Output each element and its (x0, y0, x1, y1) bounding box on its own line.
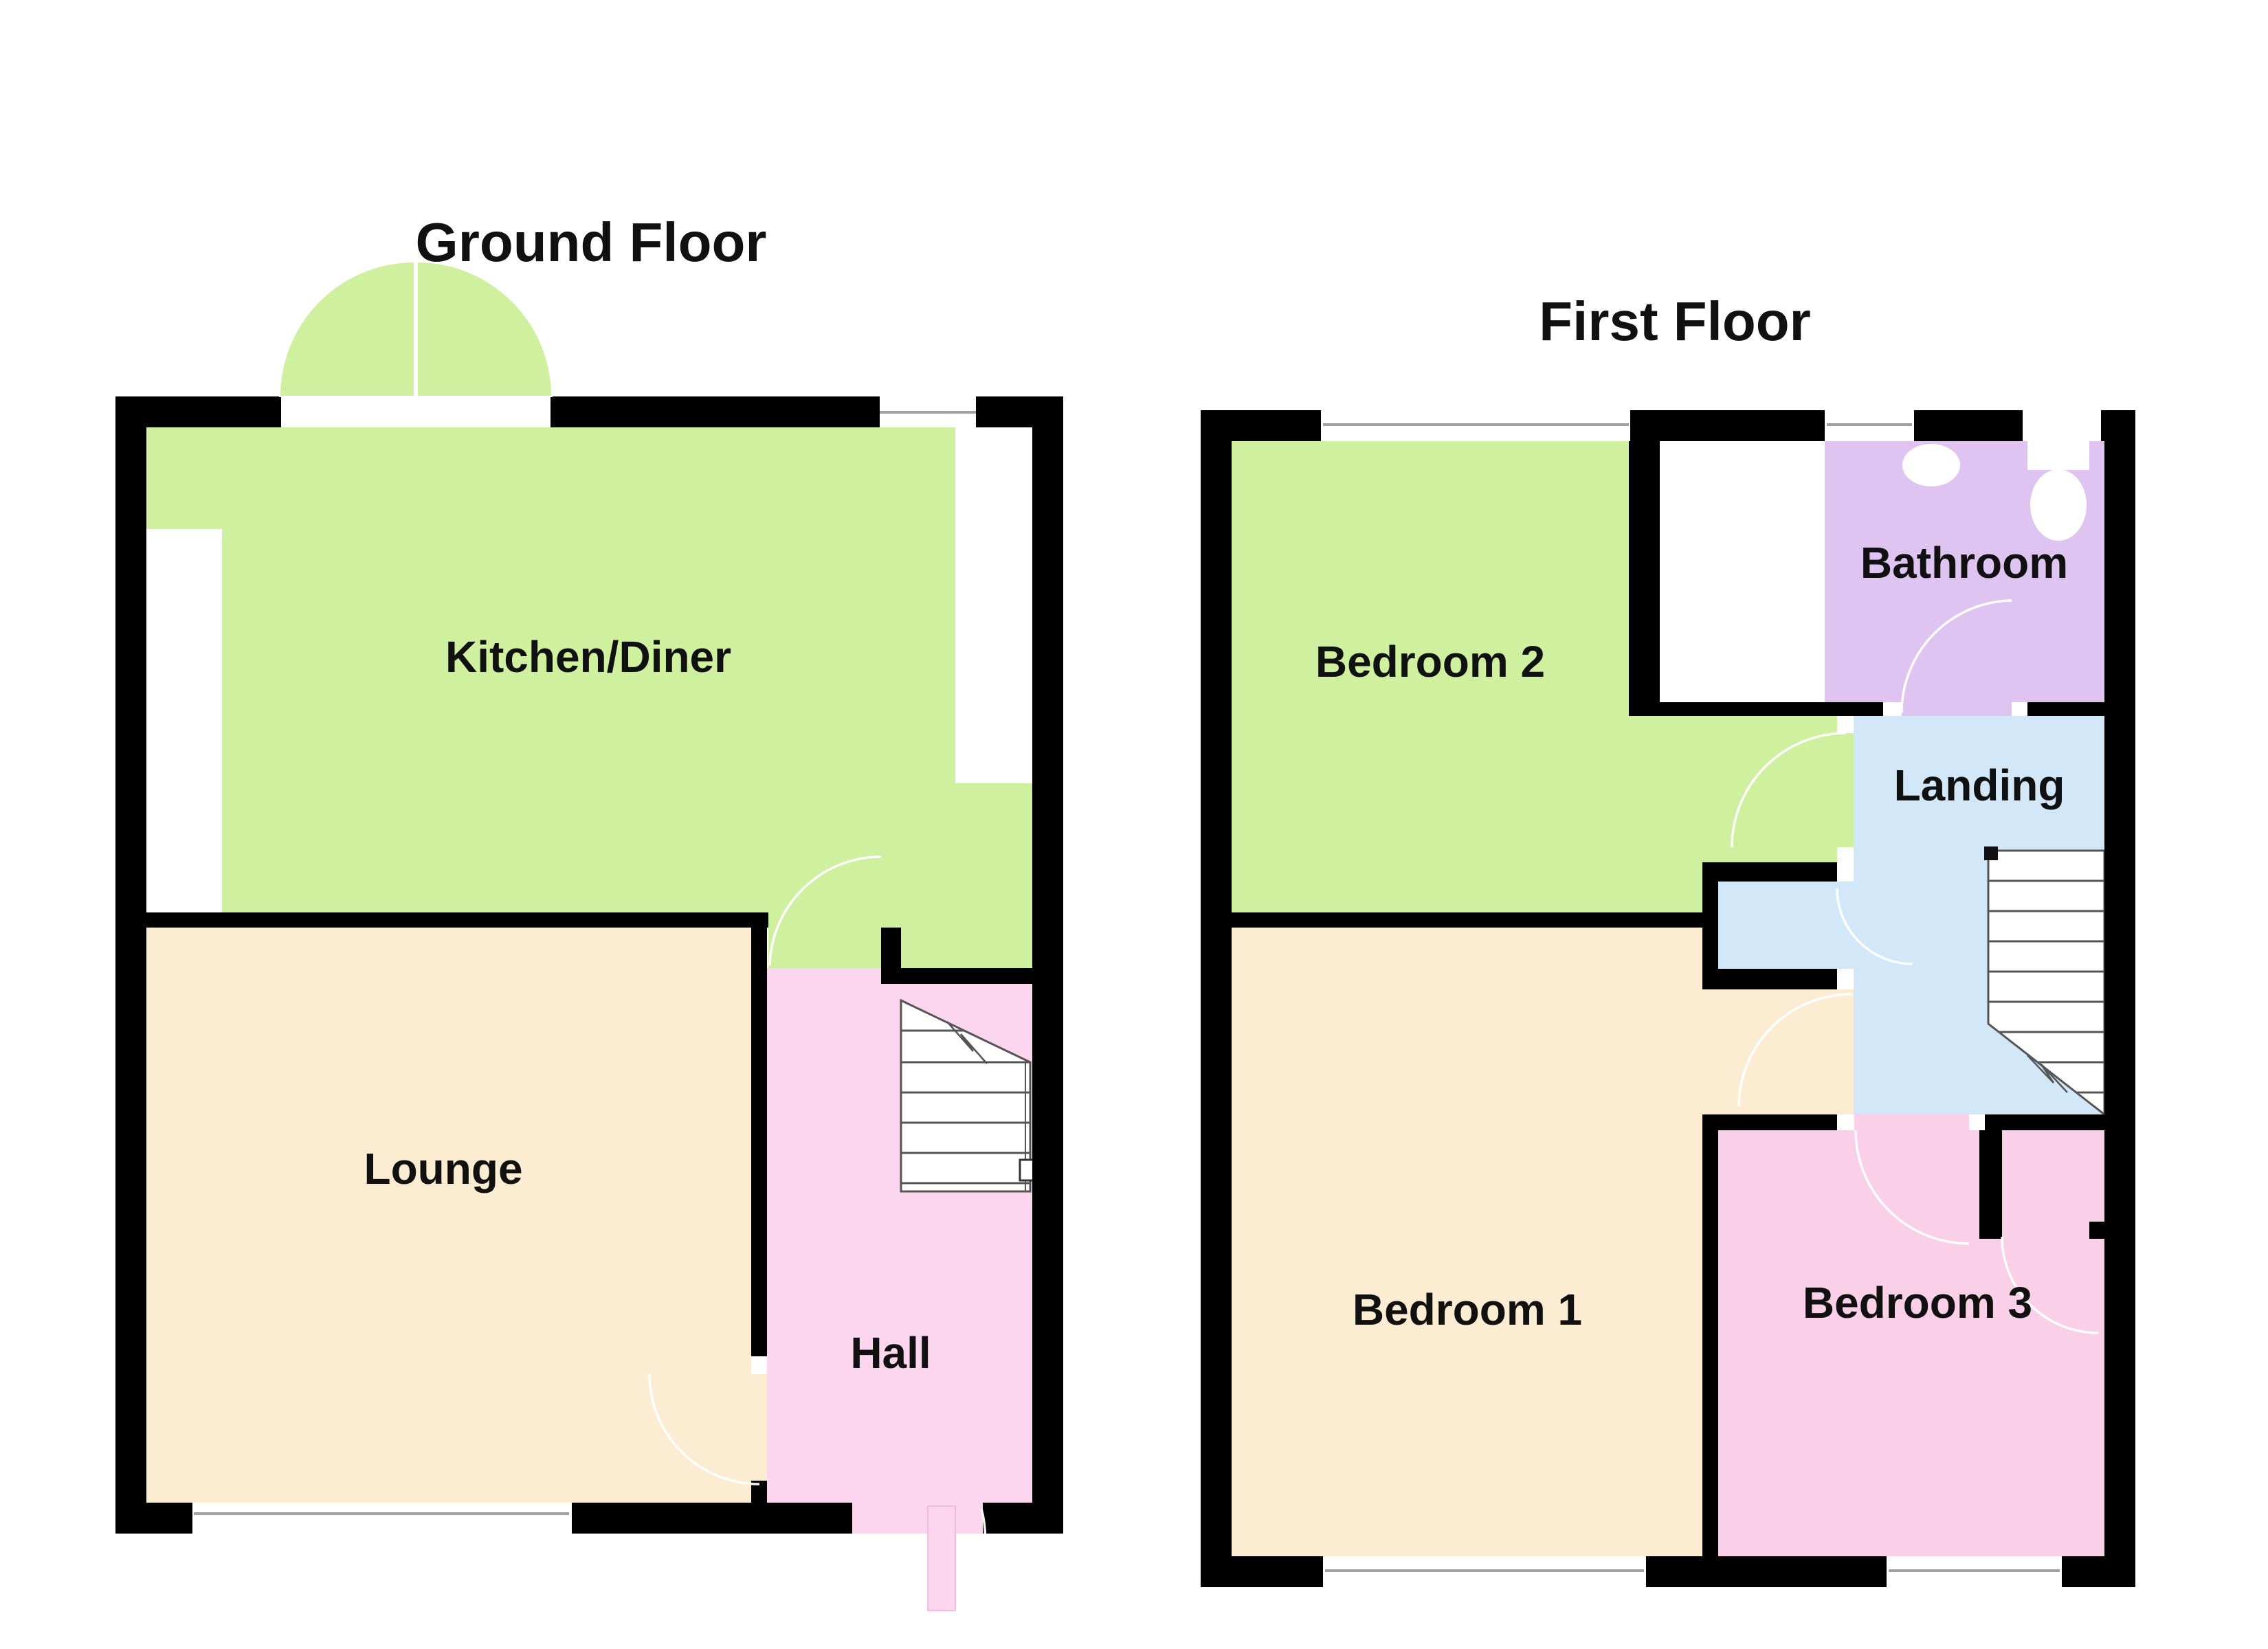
front-door-leaf (928, 1506, 955, 1611)
floorplan-page: Ground Floor First Floor Kitchen/Diner L… (0, 0, 2268, 1649)
title-first-floor: First Floor (1539, 291, 1811, 352)
jamb-bedroom3-right (1969, 1114, 1985, 1130)
wall-ff-top-1 (1201, 410, 1321, 441)
wall-ff-right (2104, 410, 2135, 1587)
wall-gf-top-3 (976, 396, 1063, 427)
label-kitchen-diner: Kitchen/Diner (445, 632, 731, 682)
jamb-bedroom3-left (1837, 1114, 1854, 1130)
wall-kitchen-lounge (146, 912, 768, 928)
wall-gf-left (115, 396, 146, 1534)
wall-bedroom3-top-1 (1702, 1114, 1837, 1130)
jamb-bedroom2-top (1837, 716, 1854, 733)
room-lounge (146, 928, 751, 1503)
jamb-nook-top (1837, 862, 1854, 882)
wall-ff-left (1201, 410, 1232, 1587)
label-hall: Hall (850, 1328, 931, 1378)
wall-ff-bottom-2 (1646, 1556, 1887, 1587)
wall-gf-top-1 (115, 396, 281, 427)
label-lounge: Lounge (364, 1144, 522, 1193)
wall-gf-right (1032, 396, 1063, 1534)
wall-bedroom3-cupboard-jamb (2089, 1222, 2104, 1239)
wall-bedroom1-bedroom3 (1702, 1114, 1718, 1556)
room-bedroom3 (1718, 1130, 2104, 1556)
wall-ff-top-2 (1630, 410, 1825, 441)
jamb-bedroom2-bottom (1837, 847, 1854, 862)
stairs-first-newel-post (1984, 846, 1998, 860)
landing-cupboard-nook (1718, 882, 1854, 969)
room-kitchen-diner (146, 427, 1032, 968)
wall-kitchen-hall-stub (881, 928, 901, 984)
wall-lounge-hall (751, 928, 767, 1356)
wall-nook-top (1718, 862, 1837, 882)
wall-ff-top-4 (2101, 410, 2135, 441)
wall-gf-bottom-1 (115, 1503, 192, 1534)
wall-gf-top-2 (551, 396, 880, 427)
label-landing: Landing (1894, 761, 2065, 810)
wall-bathroom-bottom-2 (2027, 702, 2104, 716)
toilet-bowl-icon (2030, 469, 2087, 541)
wall-nook-bottom (1702, 969, 1852, 989)
wall-gf-bottom-2 (572, 1503, 852, 1534)
wall-ff-top-3 (1914, 410, 2023, 441)
front-door-threshold (852, 1503, 983, 1534)
wall-bedroom3-cupboard-stub (1979, 1130, 2002, 1239)
toilet-cistern-icon (2027, 441, 2089, 470)
label-bedroom3: Bedroom 3 (1803, 1278, 2032, 1327)
wall-ff-bottom-1 (1201, 1556, 1323, 1587)
wall-bedroom3-top-2 (1985, 1114, 2104, 1130)
wall-ff-bottom-3 (2062, 1556, 2135, 1587)
jamb-lounge-hall (751, 1356, 767, 1374)
jamb-bathroom-right (2012, 702, 2027, 716)
wall-bedroom1-bedroom2 (1232, 912, 1702, 928)
wall-kitchen-hall (901, 968, 1032, 984)
floorplan-svg: Ground Floor First Floor Kitchen/Diner L… (0, 0, 2268, 1649)
wall-bathroom-bottom-1 (1660, 702, 1883, 716)
jamb-bathroom-left (1883, 702, 1902, 716)
label-bathroom: Bathroom (1860, 538, 2068, 587)
jamb-nook-bottom (1837, 969, 1854, 989)
ground-floor-plan (115, 262, 1063, 1613)
bedroom3-doorway-floor (1854, 1114, 1969, 1130)
wall-bedroom2-right (1629, 441, 1660, 716)
label-bedroom1: Bedroom 1 (1353, 1285, 1582, 1334)
title-ground-floor: Ground Floor (415, 212, 766, 273)
sink-icon (1902, 444, 1960, 486)
label-bedroom2: Bedroom 2 (1315, 637, 1545, 686)
wall-gf-bottom-3 (983, 1503, 1063, 1534)
